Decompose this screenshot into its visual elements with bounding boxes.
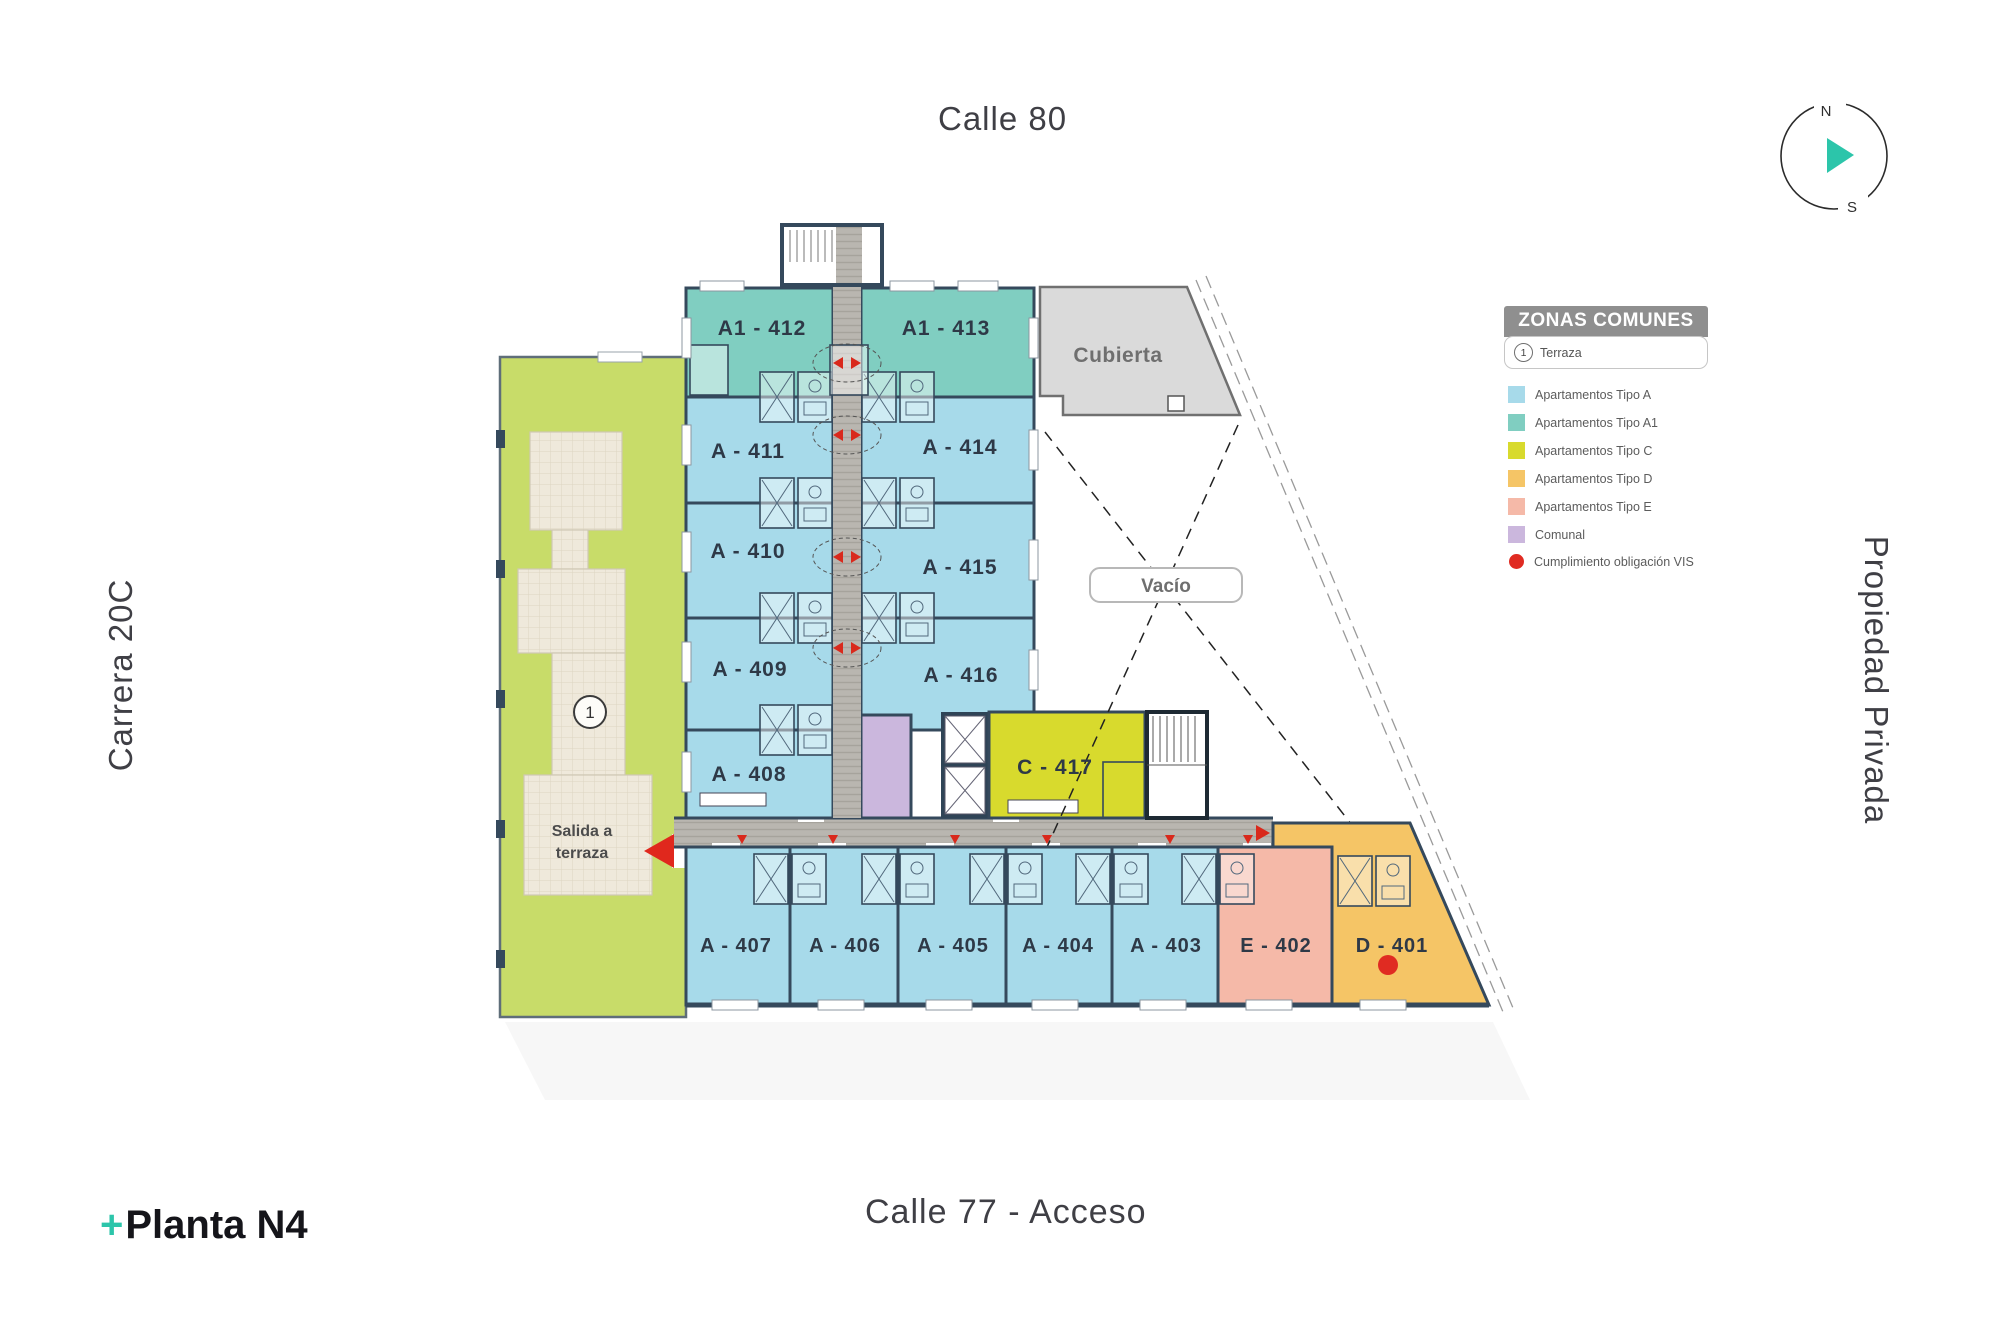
unit-label-a-407: A - 407 bbox=[700, 935, 772, 957]
street-label-calle-77: Calle 77 - Acceso bbox=[865, 1193, 1147, 1232]
title-plus-icon: + bbox=[100, 1203, 123, 1247]
legend-row-tipo-e: Apartamentos Tipo E bbox=[1508, 498, 1708, 515]
unit-label-d-401: D - 401 bbox=[1356, 935, 1429, 957]
unit-label-a-415: A - 415 bbox=[922, 556, 997, 579]
legend-label-tipo-a: Apartamentos Tipo A bbox=[1535, 388, 1651, 402]
terraza-number-icon: 1 bbox=[1514, 343, 1533, 362]
compass-icon: N S bbox=[1778, 96, 1898, 220]
swatch-tipo-a-icon bbox=[1508, 386, 1525, 403]
unit-label-c-417: C - 417 bbox=[1017, 756, 1093, 779]
legend-header: ZONAS COMUNES bbox=[1504, 306, 1708, 337]
elevators bbox=[941, 712, 989, 818]
unit-label-a-404: A - 404 bbox=[1022, 935, 1094, 957]
terrace-marker-number: 1 bbox=[585, 703, 594, 722]
legend-label-comunal: Comunal bbox=[1535, 528, 1585, 542]
terraza-label: Terraza bbox=[1540, 346, 1582, 360]
kitchen-counter bbox=[700, 793, 766, 806]
unit-label-a-406: A - 406 bbox=[809, 935, 881, 957]
unit-label-e-402: E - 402 bbox=[1240, 935, 1311, 957]
stair-shaft-top bbox=[782, 225, 882, 285]
swatch-tipo-a1-icon bbox=[1508, 414, 1525, 431]
legend-label-tipo-c: Apartamentos Tipo C bbox=[1535, 444, 1652, 458]
legend-row-tipo-a1: Apartamentos Tipo A1 bbox=[1508, 414, 1708, 431]
swatch-tipo-c-icon bbox=[1508, 442, 1525, 459]
unit-label-a-408: A - 408 bbox=[711, 763, 786, 786]
cubierta-area: Cubierta bbox=[1040, 287, 1240, 415]
comunal-area bbox=[861, 715, 911, 818]
page-title: +Planta N4 bbox=[100, 1203, 308, 1248]
unit-label-a1-412: A1 - 412 bbox=[718, 317, 807, 340]
legend-row-vis: Cumplimiento obligación VIS bbox=[1508, 554, 1708, 569]
legend-panel: ZONAS COMUNES 1 Terraza Apartamentos Tip… bbox=[1504, 306, 1708, 569]
salida-label-line1: Salida a bbox=[552, 823, 613, 840]
unit-label-a1-413: A1 - 413 bbox=[902, 317, 991, 340]
street-label-propiedad-privada: Propiedad Privada bbox=[1857, 536, 1895, 825]
site-shadow bbox=[505, 1022, 1530, 1100]
terrace-top-window bbox=[598, 352, 642, 362]
legend-label-tipo-a1: Apartamentos Tipo A1 bbox=[1535, 416, 1658, 430]
floorplan-drawing: 1 Salida a terraza bbox=[0, 0, 2000, 1334]
unit-label-a-414: A - 414 bbox=[922, 436, 997, 459]
unit-label-a-411: A - 411 bbox=[711, 440, 785, 463]
vis-dot-icon bbox=[1509, 554, 1524, 569]
swatch-comunal-icon bbox=[1508, 526, 1525, 543]
legend-terraza-row: 1 Terraza bbox=[1504, 336, 1708, 369]
unit-label-a-410: A - 410 bbox=[710, 540, 785, 563]
legend-row-tipo-c: Apartamentos Tipo C bbox=[1508, 442, 1708, 459]
title-text: Planta N4 bbox=[125, 1203, 307, 1247]
bottom-row bbox=[686, 823, 1489, 1010]
legend-row-comunal: Comunal bbox=[1508, 526, 1708, 543]
stairwell bbox=[1147, 712, 1207, 818]
street-label-carrera-20c: Carrera 20C bbox=[102, 579, 140, 772]
vis-dot bbox=[1378, 955, 1398, 975]
unit-label-a-403: A - 403 bbox=[1130, 935, 1202, 957]
unit-label-a-409: A - 409 bbox=[712, 658, 787, 681]
compass-south: S bbox=[1847, 199, 1857, 216]
swatch-tipo-d-icon bbox=[1508, 470, 1525, 487]
legend-label-tipo-d: Apartamentos Tipo D bbox=[1535, 472, 1652, 486]
legend-row-tipo-a: Apartamentos Tipo A bbox=[1508, 386, 1708, 403]
legend-row-tipo-d: Apartamentos Tipo D bbox=[1508, 470, 1708, 487]
street-label-calle-80: Calle 80 bbox=[938, 100, 1067, 138]
floorplan-page: 1 Salida a terraza bbox=[0, 0, 2000, 1334]
terrace-area: 1 Salida a terraza bbox=[496, 352, 688, 1017]
swatch-tipo-e-icon bbox=[1508, 498, 1525, 515]
unit-label-a-405: A - 405 bbox=[917, 935, 989, 957]
compass-needle bbox=[1827, 138, 1854, 173]
compass-north: N bbox=[1821, 103, 1832, 120]
legend-label-tipo-e: Apartamentos Tipo E bbox=[1535, 500, 1652, 514]
legend-items: Apartamentos Tipo A Apartamentos Tipo A1… bbox=[1504, 386, 1708, 569]
unit-label-a-416: A - 416 bbox=[923, 664, 998, 687]
cubierta-label: Cubierta bbox=[1073, 344, 1162, 367]
vacio-label: Vacío bbox=[1141, 576, 1191, 597]
salida-label-line2: terraza bbox=[556, 845, 609, 862]
legend-label-vis: Cumplimiento obligación VIS bbox=[1534, 555, 1694, 569]
